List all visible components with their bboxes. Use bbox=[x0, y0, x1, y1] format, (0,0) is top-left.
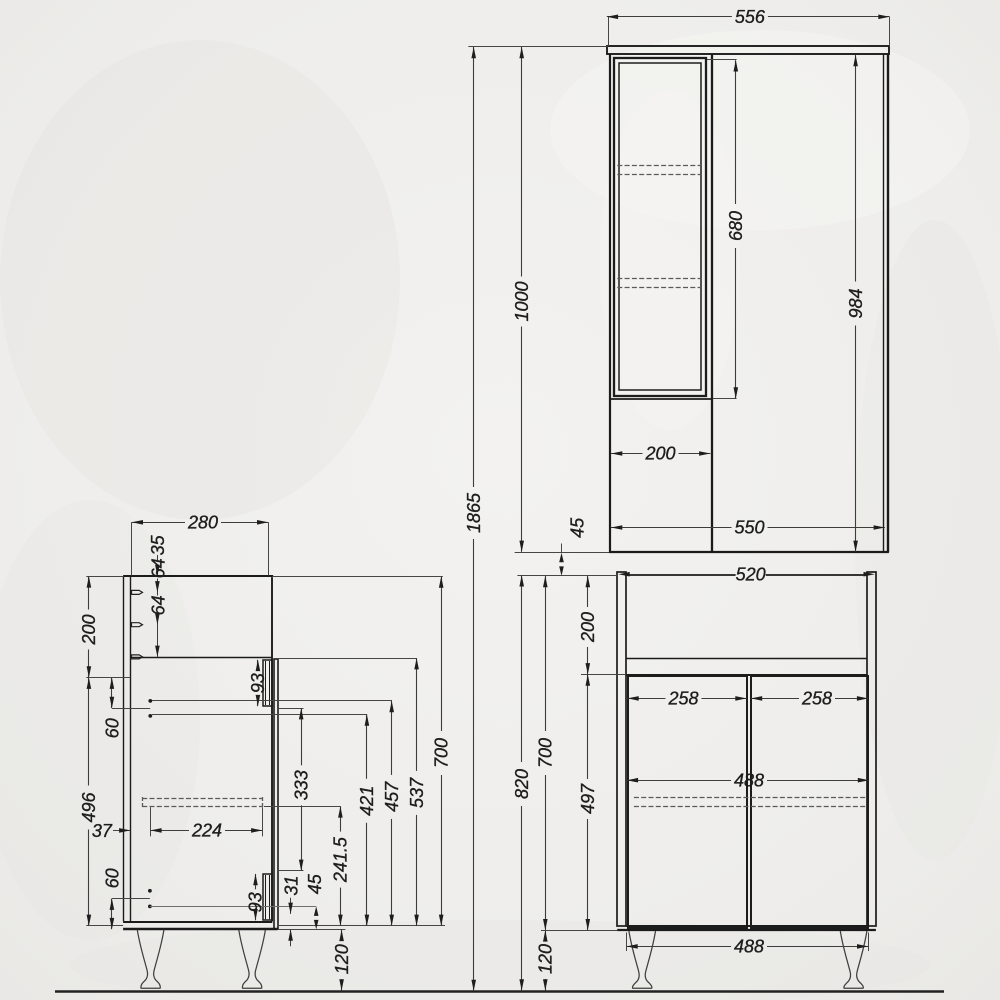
svg-text:258: 258 bbox=[667, 689, 698, 709]
svg-text:497: 497 bbox=[578, 783, 598, 814]
svg-text:520: 520 bbox=[736, 564, 766, 584]
svg-text:60: 60 bbox=[102, 868, 122, 888]
svg-text:680: 680 bbox=[726, 211, 746, 241]
svg-text:37: 37 bbox=[92, 821, 113, 841]
svg-text:60: 60 bbox=[103, 718, 123, 738]
svg-text:984: 984 bbox=[846, 288, 866, 318]
svg-text:93: 93 bbox=[248, 673, 268, 693]
svg-text:820: 820 bbox=[512, 769, 532, 799]
svg-text:64: 64 bbox=[149, 558, 169, 578]
svg-text:496: 496 bbox=[79, 792, 99, 823]
svg-text:1865: 1865 bbox=[464, 492, 484, 533]
svg-text:64: 64 bbox=[148, 595, 168, 615]
svg-text:280: 280 bbox=[187, 513, 218, 533]
svg-text:31: 31 bbox=[282, 876, 302, 896]
svg-text:258: 258 bbox=[801, 689, 832, 709]
svg-text:537: 537 bbox=[407, 777, 427, 808]
svg-text:488: 488 bbox=[734, 937, 764, 957]
svg-text:45: 45 bbox=[568, 517, 588, 538]
svg-text:550: 550 bbox=[734, 518, 764, 538]
svg-text:457: 457 bbox=[382, 781, 402, 812]
svg-text:700: 700 bbox=[431, 738, 451, 768]
svg-text:45: 45 bbox=[305, 873, 325, 894]
svg-text:224: 224 bbox=[191, 821, 222, 841]
svg-text:556: 556 bbox=[735, 7, 766, 27]
svg-text:120: 120 bbox=[332, 944, 352, 974]
svg-text:700: 700 bbox=[536, 738, 556, 768]
svg-text:35: 35 bbox=[148, 534, 168, 555]
svg-text:1000: 1000 bbox=[512, 281, 532, 321]
svg-text:421: 421 bbox=[357, 786, 377, 816]
svg-text:200: 200 bbox=[578, 612, 598, 643]
svg-text:241.5: 241.5 bbox=[331, 836, 351, 883]
svg-text:120: 120 bbox=[536, 944, 556, 974]
svg-text:488: 488 bbox=[734, 770, 764, 790]
svg-text:333: 333 bbox=[291, 770, 311, 800]
svg-text:200: 200 bbox=[79, 614, 99, 645]
svg-text:200: 200 bbox=[644, 444, 675, 464]
